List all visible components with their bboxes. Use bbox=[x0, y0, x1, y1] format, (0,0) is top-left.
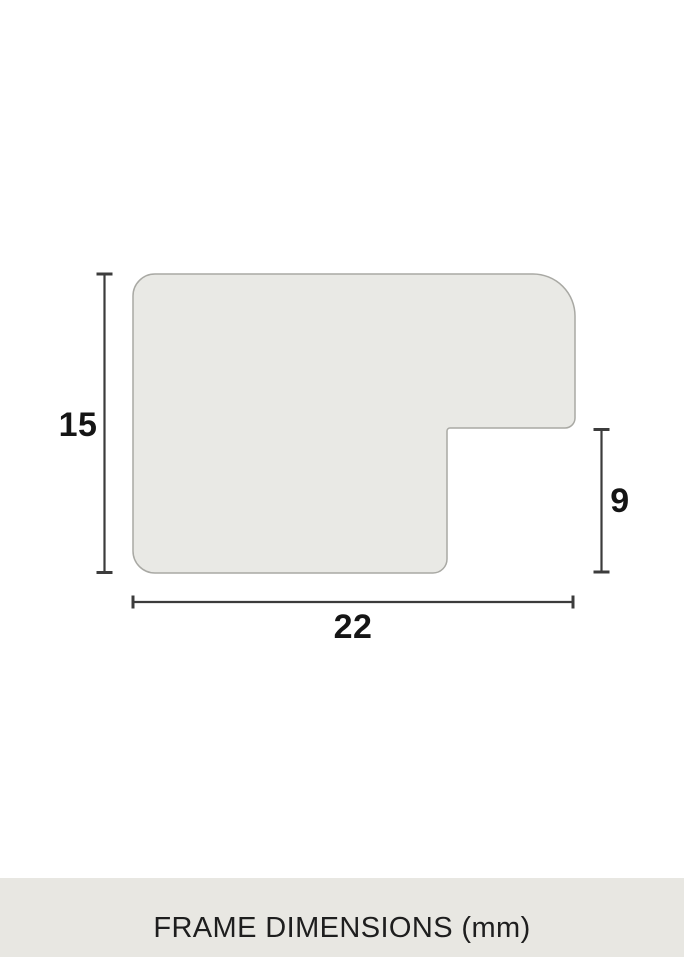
depth-dimension-line bbox=[594, 430, 610, 573]
footer-band: FRAME DIMENSIONS (mm) bbox=[0, 878, 684, 957]
height-dimension-line bbox=[97, 274, 113, 573]
frame-dimensions-diagram: 15 9 22 FRAME DIMENSIONS (mm) bbox=[0, 0, 684, 957]
width-dimension-line bbox=[133, 596, 573, 609]
height-dimension-label: 15 bbox=[59, 408, 98, 442]
footer-caption: FRAME DIMENSIONS (mm) bbox=[153, 912, 530, 945]
depth-dimension-label: 9 bbox=[610, 484, 629, 518]
diagram-canvas bbox=[0, 0, 684, 700]
width-dimension-label: 22 bbox=[334, 610, 373, 644]
frame-profile-shape bbox=[133, 274, 575, 573]
